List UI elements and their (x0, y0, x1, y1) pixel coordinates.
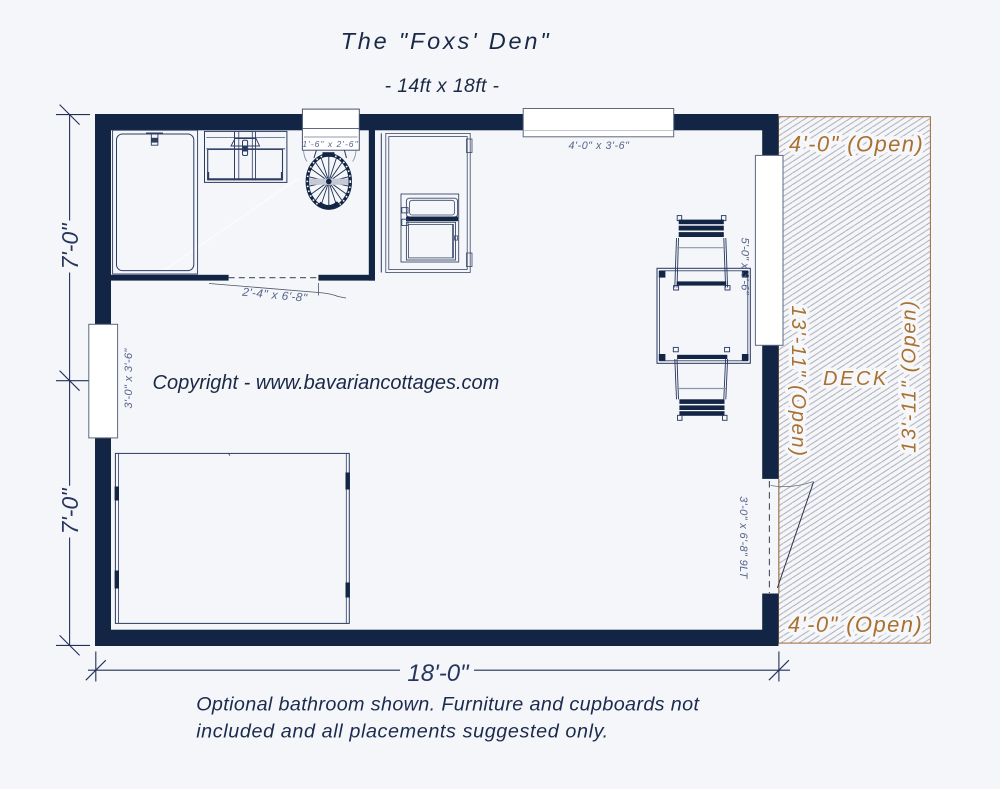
svg-text:DECK: DECK (823, 368, 889, 390)
svg-text:4'-0" x 3'-6": 4'-0" x 3'-6" (569, 140, 631, 152)
svg-text:7'-0": 7'-0" (57, 487, 83, 535)
svg-text:Optional bathroom shown. Furni: Optional bathroom shown. Furniture and c… (196, 694, 700, 716)
svg-text:included and all placements su: included and all placements suggested on… (196, 721, 609, 743)
svg-text:18'-0": 18'-0" (407, 660, 470, 687)
svg-text:13'-11" (Open): 13'-11" (Open) (787, 305, 809, 457)
svg-text:- 14ft x 18ft -: - 14ft x 18ft - (385, 75, 500, 97)
svg-text:4'-0" (Open): 4'-0" (Open) (788, 612, 923, 637)
svg-text:13'-11" (Open): 13'-11" (Open) (899, 299, 921, 453)
svg-text:3'-0" x 3'-6": 3'-0" x 3'-6" (123, 348, 135, 409)
svg-text:3'-0" x 6'-8" 9LT: 3'-0" x 6'-8" 9LT (737, 496, 749, 579)
svg-text:The "Foxs' Den": The "Foxs' Den" (341, 28, 552, 54)
svg-text:5'-0" x 3'-6": 5'-0" x 3'-6" (739, 238, 751, 296)
svg-text:Copyright - www.bavariancottag: Copyright - www.bavariancottages.com (153, 372, 500, 394)
svg-text:7'-0": 7'-0" (57, 222, 83, 270)
svg-text:4'-0" (Open): 4'-0" (Open) (789, 132, 924, 157)
svg-text:1'-6" x 2'-6": 1'-6" x 2'-6" (302, 139, 358, 149)
